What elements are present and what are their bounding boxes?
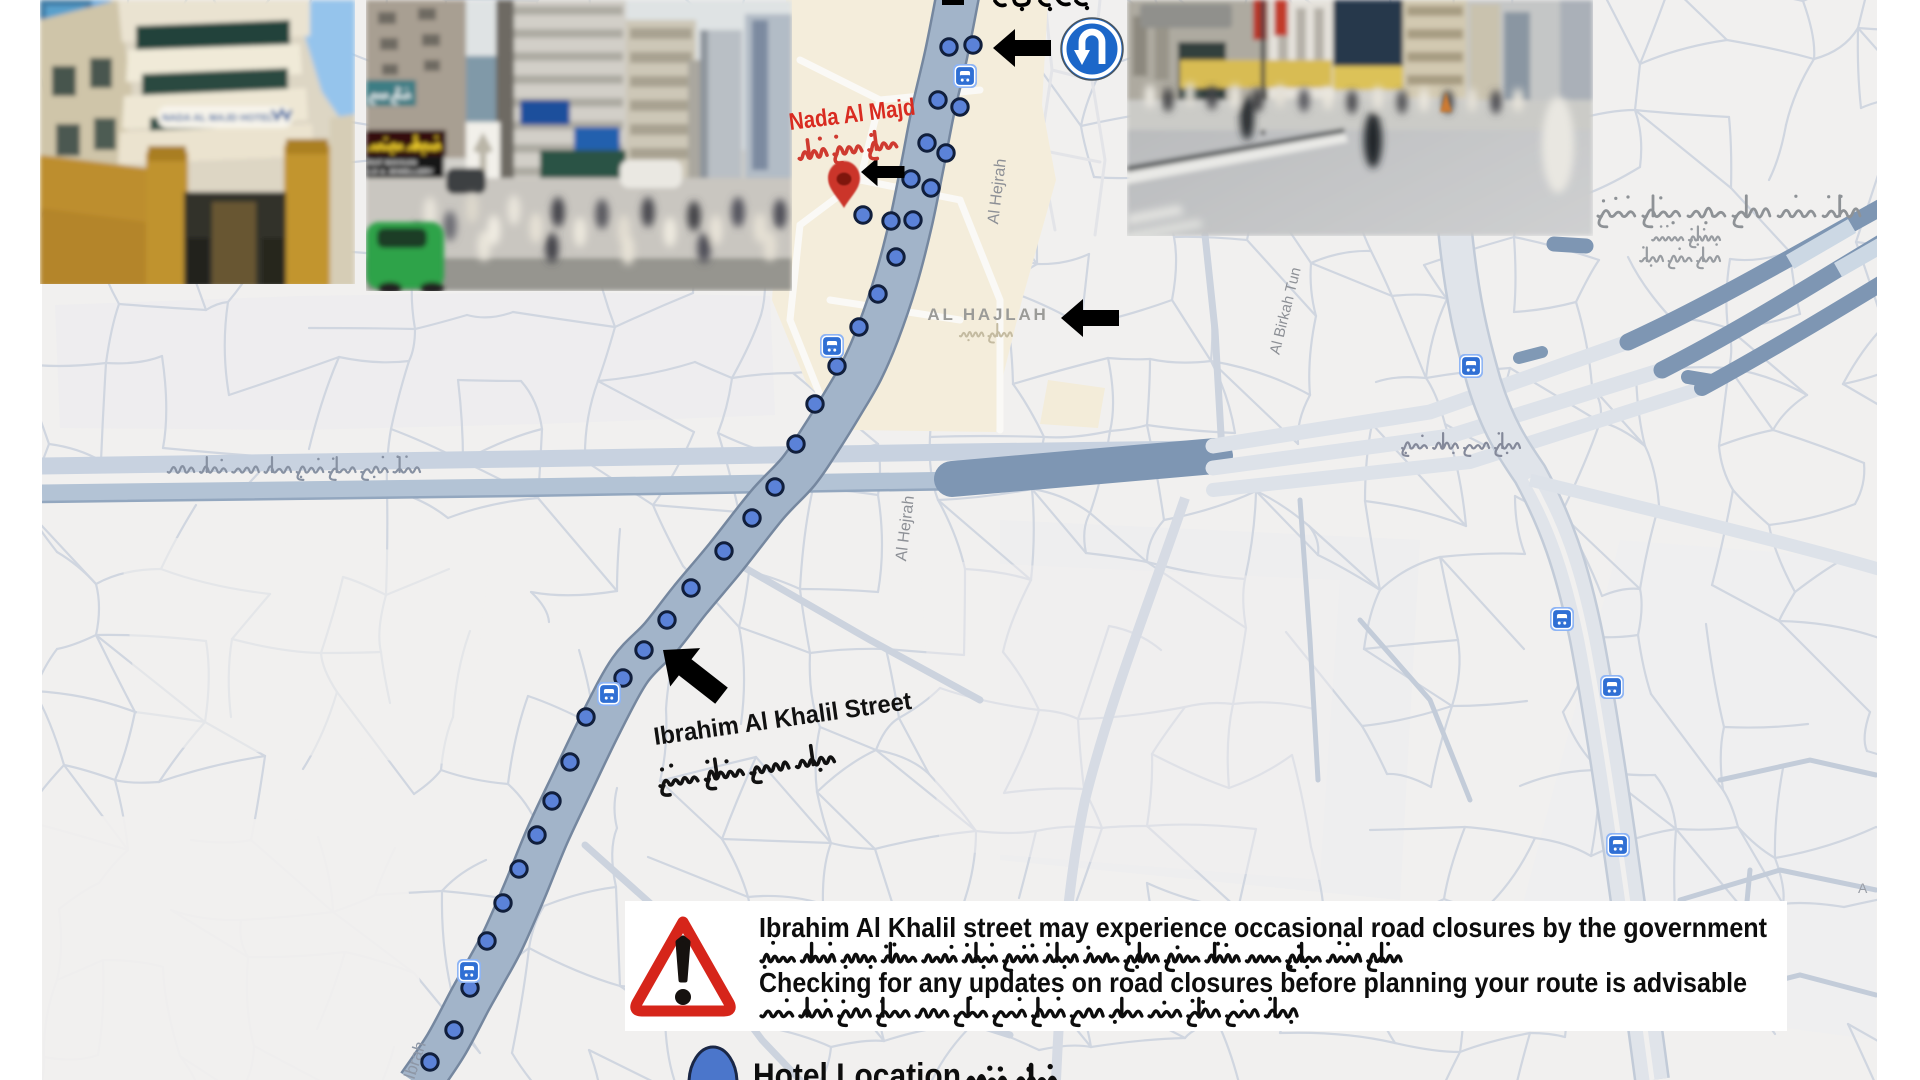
svg-text:LD & JEWELLERY: LD & JEWELLERY [368, 167, 433, 176]
svg-text:NADA AL MAJD HOTEL: NADA AL MAJD HOTEL [162, 113, 274, 124]
svg-text:Ibrahim Al Khalil street may e: Ibrahim Al Khalil street may experience … [759, 912, 1767, 943]
svg-text:Hotel Location: Hotel Location [753, 1057, 961, 1080]
svg-text:A: A [1858, 880, 1868, 896]
svg-text:AL HAJLAH: AL HAJLAH [927, 305, 1048, 324]
svg-text:RAT MAYAAN: RAT MAYAAN [368, 158, 416, 167]
svg-text:Checking for any updates on ro: Checking for any updates on road closure… [759, 967, 1747, 998]
